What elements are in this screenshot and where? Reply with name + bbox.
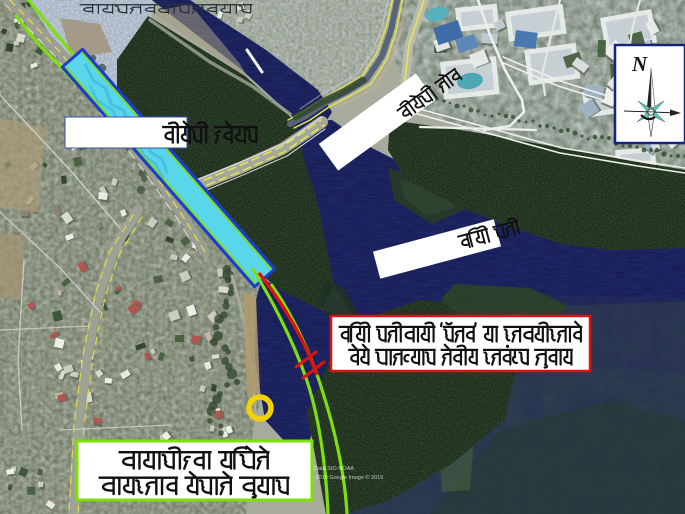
svg-text:Data SIO-NOAA: Data SIO-NOAA	[314, 466, 354, 472]
svg-text:© 2019 Google Image © 2019: © 2019 Google Image © 2019	[310, 474, 383, 481]
svg-text:N: N	[631, 52, 648, 76]
